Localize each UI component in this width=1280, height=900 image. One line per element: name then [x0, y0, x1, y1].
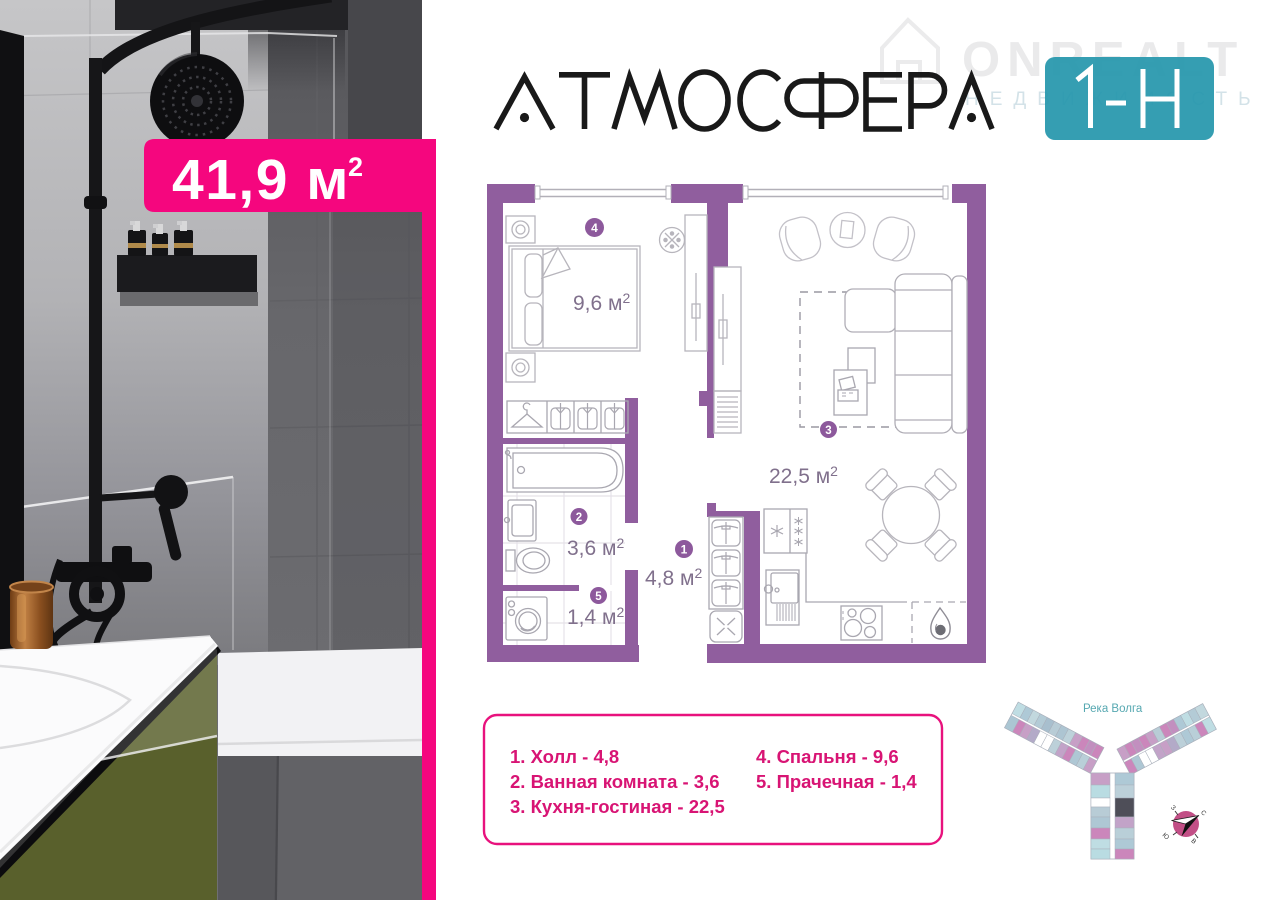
svg-text:41,9 м: 41,9 м: [172, 148, 350, 212]
svg-text:1. Холл - 4,8: 1. Холл - 4,8: [510, 746, 619, 767]
svg-text:1: 1: [681, 543, 688, 557]
svg-text:2: 2: [348, 152, 363, 182]
svg-text:С: С: [1199, 809, 1207, 818]
svg-text:4. Спальня - 9,6: 4. Спальня - 9,6: [756, 746, 899, 767]
svg-text:4: 4: [591, 221, 598, 235]
svg-text:22,5 м2: 22,5 м2: [769, 463, 838, 488]
svg-text:9,6 м2: 9,6 м2: [573, 290, 630, 315]
svg-text:2. Ванная комната - 3,6: 2. Ванная комната - 3,6: [510, 771, 720, 792]
svg-text:2: 2: [576, 512, 582, 524]
svg-text:З: З: [1169, 804, 1177, 812]
svg-text:3. Кухня-гостиная - 22,5: 3. Кухня-гостиная - 22,5: [510, 796, 725, 817]
svg-text:3: 3: [825, 425, 831, 437]
svg-text:4,8 м2: 4,8 м2: [645, 565, 702, 590]
svg-text:5. Прачечная - 1,4: 5. Прачечная - 1,4: [756, 771, 917, 792]
svg-text:В: В: [1189, 838, 1197, 846]
svg-text:Ю: Ю: [1161, 832, 1171, 842]
svg-text:Река Волга: Река Волга: [1083, 703, 1143, 715]
svg-text:3,6 м2: 3,6 м2: [567, 535, 624, 560]
svg-text:5: 5: [595, 591, 602, 603]
svg-text:1,4 м2: 1,4 м2: [567, 604, 624, 629]
